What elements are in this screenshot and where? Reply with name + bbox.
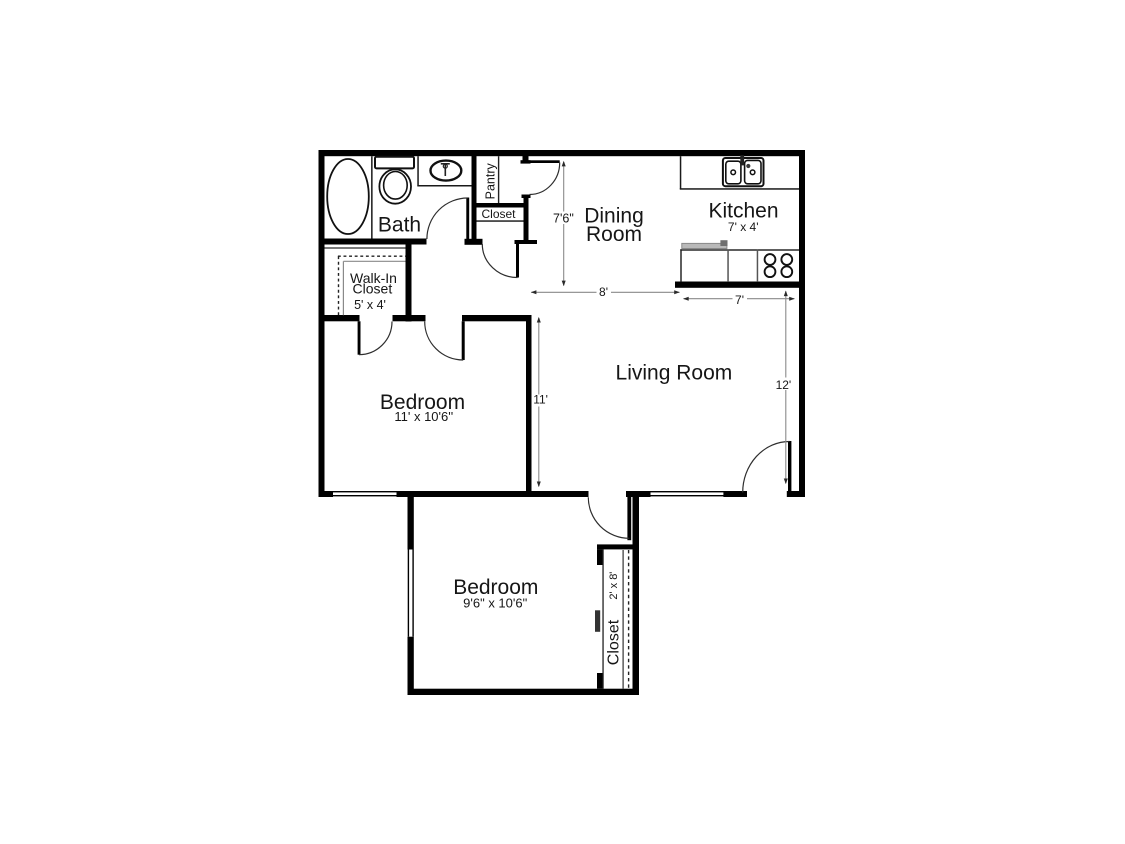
svg-text:Bath: Bath <box>378 214 421 237</box>
svg-text:7'6": 7'6" <box>553 211 574 225</box>
svg-text:Living Room: Living Room <box>616 361 733 384</box>
svg-text:Room: Room <box>586 223 642 246</box>
svg-text:2' x 8': 2' x 8' <box>608 572 620 600</box>
svg-text:Closet: Closet <box>605 619 622 665</box>
svg-text:5' x 4': 5' x 4' <box>354 298 386 312</box>
svg-text:9'6" x 10'6": 9'6" x 10'6" <box>463 596 527 611</box>
svg-text:8': 8' <box>599 285 608 299</box>
svg-text:7' x 4': 7' x 4' <box>728 220 759 234</box>
svg-text:Closet: Closet <box>481 207 516 221</box>
svg-text:Closet: Closet <box>353 281 393 297</box>
svg-text:7': 7' <box>735 293 744 307</box>
svg-text:Pantry: Pantry <box>484 162 498 199</box>
svg-text:12': 12' <box>776 378 792 392</box>
svg-text:11': 11' <box>533 392 548 406</box>
svg-text:11' x 10'6'': 11' x 10'6'' <box>394 409 453 424</box>
